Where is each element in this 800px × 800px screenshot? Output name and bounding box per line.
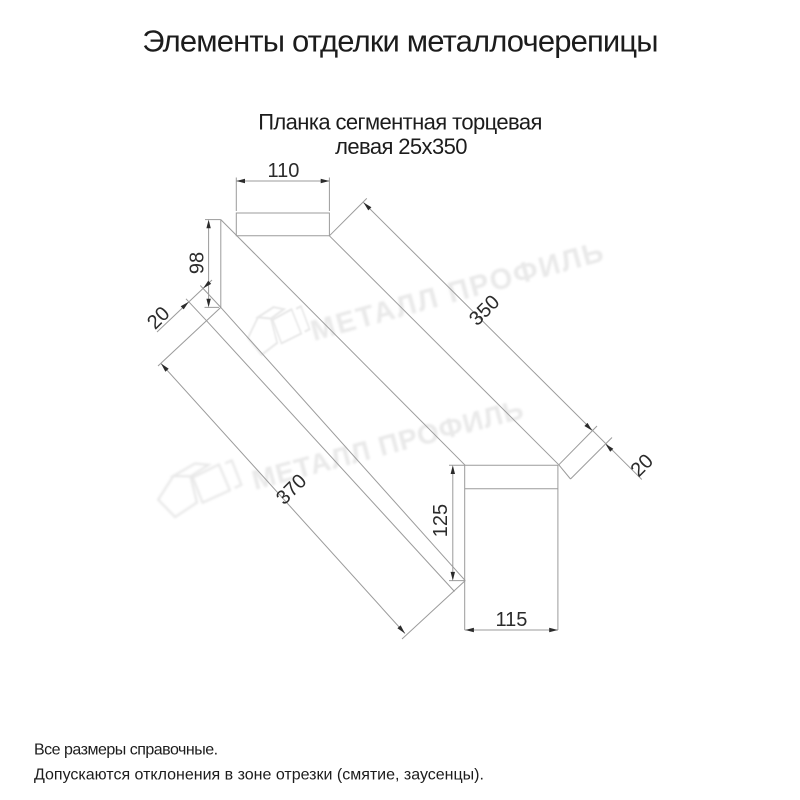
- svg-text:125: 125: [430, 504, 452, 537]
- svg-text:левая 25х350: левая 25х350: [335, 134, 467, 159]
- svg-text:98: 98: [187, 252, 209, 274]
- svg-text:Планка сегментная торцевая: Планка сегментная торцевая: [258, 110, 542, 135]
- svg-text:115: 115: [496, 609, 528, 631]
- svg-text:110: 110: [268, 160, 300, 182]
- svg-text:Все размеры справочные.: Все размеры справочные.: [34, 742, 218, 759]
- svg-text:Элементы отделки металлочерепи: Элементы отделки металлочерепицы: [142, 24, 657, 59]
- svg-text:Допускаются отклонения в зоне: Допускаются отклонения в зоне отрезки (с…: [34, 767, 484, 784]
